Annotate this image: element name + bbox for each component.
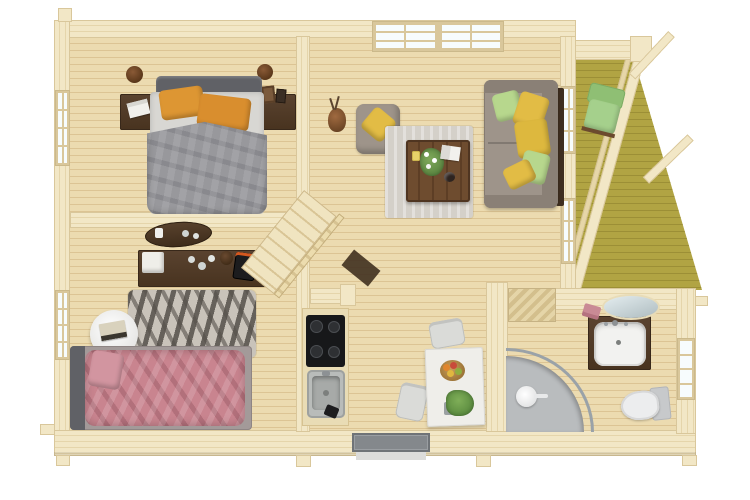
- canister: [220, 251, 233, 265]
- wall-sconce-left: [126, 66, 143, 83]
- log-end-tab: [58, 8, 72, 22]
- left-exterior-wall: [54, 20, 70, 436]
- burner: [328, 321, 340, 333]
- potted-plant: [446, 390, 474, 416]
- flower-white: [426, 164, 431, 169]
- flower-white: [432, 158, 437, 163]
- glassware: [188, 256, 195, 263]
- basin-faucet: [612, 320, 618, 326]
- glassware: [208, 255, 215, 262]
- white-storage-box: [142, 252, 164, 273]
- east-wall-window-lower: [561, 198, 576, 264]
- picture-frame-small: [275, 89, 286, 104]
- burner: [310, 345, 323, 358]
- burner: [328, 346, 340, 358]
- glass-decor: [193, 233, 199, 239]
- bathroom-left-wall: [486, 282, 508, 432]
- drink-glass: [412, 151, 420, 161]
- basin-drain: [616, 340, 621, 345]
- master-bed-gray-duvet: [147, 118, 267, 214]
- master-bedroom-window: [55, 90, 70, 166]
- log-end-tab: [56, 455, 70, 466]
- log-end-tab: [695, 296, 708, 306]
- glass-decor: [182, 230, 189, 237]
- fruit-green: [455, 368, 462, 375]
- entrance-door: [352, 433, 430, 452]
- glassware: [198, 262, 206, 270]
- floor-vase: [328, 108, 346, 132]
- log-end-tab: [476, 455, 491, 467]
- second-bed-headboard: [70, 346, 85, 430]
- pink-pillow: [87, 349, 125, 390]
- candle-white: [155, 228, 163, 238]
- window-sash-left: [374, 23, 437, 50]
- living-room-top-window: [372, 21, 504, 52]
- log-end-tab: [40, 424, 55, 435]
- log-end-tab: [296, 455, 311, 467]
- faucet-knob: [624, 322, 628, 326]
- log-end-tab: [682, 455, 697, 466]
- shower-arm: [534, 394, 548, 398]
- window-sash-right: [440, 23, 503, 50]
- floor-plan-render: [0, 0, 750, 500]
- fruit-bowl: [440, 360, 465, 381]
- entrance-threshold: [356, 452, 426, 460]
- burner: [310, 320, 323, 333]
- open-book: [440, 145, 461, 162]
- second-bedroom-window: [55, 290, 70, 360]
- induction-cooktop: [306, 315, 345, 367]
- fruit-yellow: [447, 370, 454, 377]
- bathroom-open-door-leaf: [508, 288, 556, 322]
- faucet-knob: [604, 322, 608, 326]
- bathroom-window: [677, 338, 695, 400]
- sink-faucet: [322, 371, 330, 376]
- oval-mirror: [604, 296, 658, 318]
- flower-white: [424, 152, 429, 157]
- sofa-armrest-bottom: [484, 195, 542, 208]
- sink-drain: [323, 390, 329, 396]
- kitchen-wall-post: [340, 284, 356, 306]
- coffee-cup: [444, 172, 455, 182]
